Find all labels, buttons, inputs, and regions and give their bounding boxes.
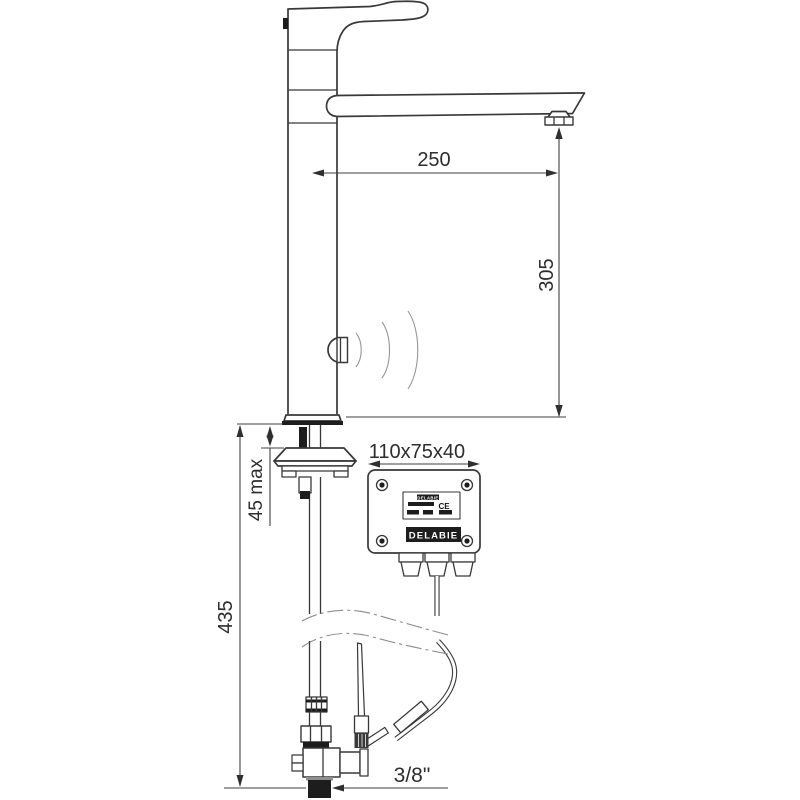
valve-body xyxy=(303,748,340,777)
inlet-assembly xyxy=(292,641,369,798)
rating-plate: DELABIE CE xyxy=(403,492,460,519)
arrow-left-icon xyxy=(332,785,344,792)
arrow-right-icon xyxy=(546,170,558,177)
arrow-down-icon xyxy=(555,405,562,417)
dim-inlet-label: 3/8" xyxy=(394,764,431,787)
arrow-down-icon xyxy=(237,775,244,787)
threaded-rod xyxy=(299,427,307,448)
cable-gland-icon xyxy=(451,553,475,576)
base-flange xyxy=(282,415,343,425)
sensor-window xyxy=(328,338,348,363)
dim-under-deck-label: 435 xyxy=(215,600,237,633)
jack-socket xyxy=(355,643,369,748)
spout xyxy=(327,93,585,117)
dim-deck-max-label: 45 max xyxy=(246,458,267,521)
faucet xyxy=(282,1,585,425)
thread-3-8-male xyxy=(308,780,331,798)
lever-handle xyxy=(288,1,428,414)
arrow-right-icon xyxy=(468,461,480,468)
dim-spout-reach-label: 250 xyxy=(417,149,450,171)
dim-deck-max: 45 max xyxy=(237,424,284,526)
rating-plate-ce-mark: CE xyxy=(438,502,450,511)
arrow-down-icon xyxy=(267,436,274,447)
brand-plate-label: DELABIE xyxy=(409,531,458,542)
arrow-up-icon xyxy=(237,425,244,437)
break-lines xyxy=(302,610,448,654)
arrow-up-icon xyxy=(555,127,562,139)
technical-drawing-canvas: 110x75x40 DELABIE CE DELABIE xyxy=(0,0,800,800)
dim-spout-reach: 250 xyxy=(312,149,558,177)
cable-gland-icon xyxy=(399,553,423,576)
hose-adapter xyxy=(306,697,327,712)
technical-drawing-page: 110x75x40 DELABIE CE DELABIE xyxy=(0,0,800,800)
box-size-label: 110x75x40 xyxy=(369,441,465,463)
escutcheon-cone xyxy=(274,448,356,477)
cable-gland-icon xyxy=(425,553,449,576)
dim-aerator-height: 305 xyxy=(346,127,566,417)
body-index-nub xyxy=(283,18,288,29)
sensor-waves-icon xyxy=(356,311,418,389)
fixing-stud xyxy=(299,477,311,499)
valve-side-port xyxy=(340,752,360,773)
cable-glands xyxy=(399,553,475,576)
sensor-cable xyxy=(362,576,454,748)
control-box: 110x75x40 DELABIE CE DELABIE xyxy=(368,441,480,576)
fixing-set xyxy=(274,425,356,614)
dim-aerator-height-label: 305 xyxy=(536,258,558,291)
brand-plate: DELABIE xyxy=(406,527,461,542)
rating-plate-brand: DELABIE xyxy=(417,495,438,500)
